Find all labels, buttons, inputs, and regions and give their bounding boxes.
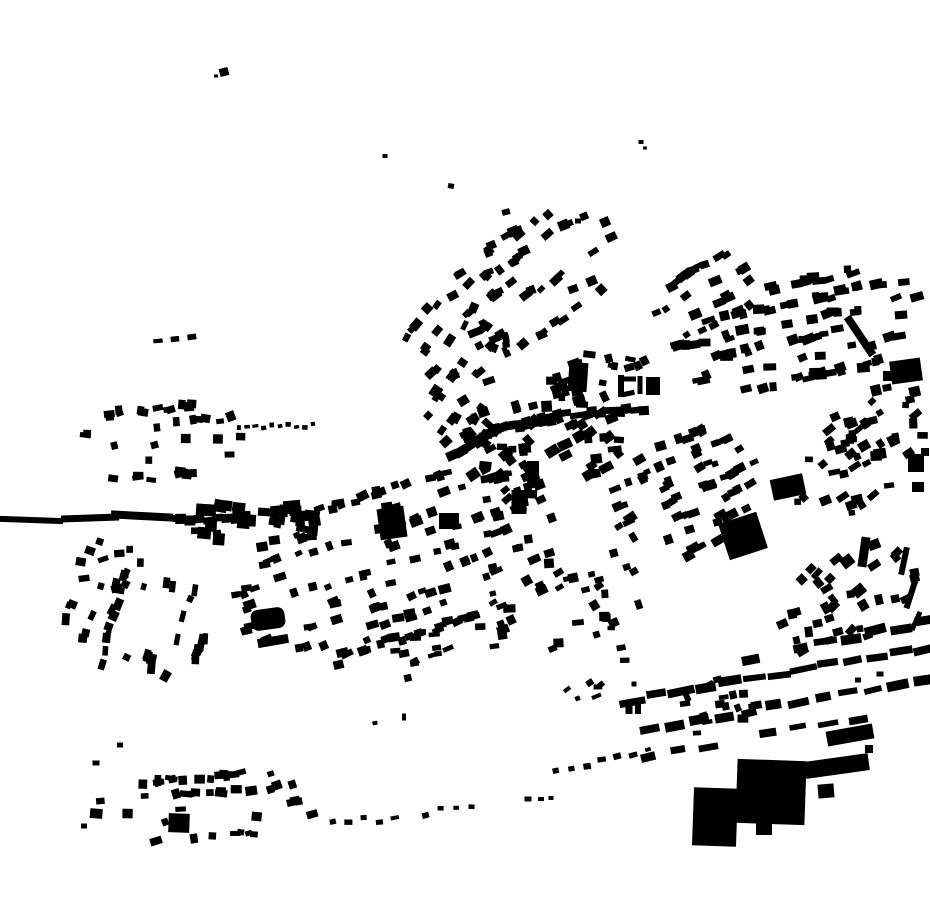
building-footprint — [850, 308, 861, 316]
building-footprint — [663, 534, 674, 546]
building-footprint — [848, 460, 862, 472]
building-footprint — [572, 619, 584, 626]
building-footprint — [440, 469, 452, 477]
building-footprint — [239, 511, 251, 523]
building-footprint — [638, 376, 643, 394]
building-footprint — [817, 459, 828, 470]
building-footprint — [829, 553, 843, 566]
building-footprint — [505, 276, 518, 288]
building-footprint — [588, 571, 596, 578]
building-footprint — [225, 410, 237, 422]
building-footprint — [385, 579, 396, 587]
building-footprint — [829, 411, 841, 422]
building-footprint — [482, 496, 491, 504]
building-footprint — [884, 482, 895, 489]
building-footprint — [231, 785, 242, 793]
building-footprint — [439, 435, 453, 449]
building-footprint — [213, 530, 222, 540]
building-footprint — [857, 439, 871, 453]
figure-ground-map — [0, 0, 930, 924]
building-footprint — [123, 571, 129, 578]
building-footprint — [806, 314, 818, 325]
building-footprint — [812, 292, 820, 298]
building-footprint — [190, 833, 199, 844]
building-footprint — [421, 302, 434, 315]
building-footprint — [792, 636, 800, 645]
building-footprint — [717, 674, 742, 687]
building-footprint — [714, 711, 734, 723]
building-footprint — [287, 779, 297, 789]
building-footprint — [867, 559, 881, 572]
building-footprint — [846, 590, 855, 599]
building-footprint — [735, 324, 750, 336]
building-footprint — [874, 594, 884, 606]
building-footprint — [426, 506, 438, 518]
building-footprint — [622, 390, 635, 397]
building-footprint — [591, 692, 602, 699]
building-footprint — [898, 278, 910, 286]
building-footprint — [588, 599, 600, 612]
building-footprint — [150, 441, 159, 450]
building-footprint — [390, 648, 400, 654]
building-footprint — [153, 338, 163, 343]
building-footprint — [632, 682, 637, 687]
building-footprint — [626, 700, 633, 714]
building-footprint — [639, 140, 644, 144]
building-footprint — [81, 628, 90, 638]
building-footprint — [306, 809, 319, 819]
building-footprint — [594, 684, 603, 689]
building-footprint — [527, 553, 541, 565]
building-footprint — [433, 548, 441, 555]
building-footprint — [794, 499, 801, 505]
building-footprint — [599, 216, 611, 228]
building-footprint — [302, 425, 308, 430]
building-footprint — [423, 410, 433, 420]
building-footprint — [832, 627, 844, 637]
building-footprint — [688, 307, 703, 320]
building-footprint — [805, 457, 813, 463]
building-footprint — [482, 376, 496, 386]
building-footprint — [822, 423, 836, 437]
building-footprint — [800, 275, 812, 284]
building-footprint — [325, 541, 334, 551]
building-footprint — [168, 813, 190, 833]
building-footprint — [432, 300, 442, 310]
building-footprint — [122, 653, 131, 662]
building-footprint — [599, 390, 610, 403]
building-footprint — [583, 763, 591, 770]
building-footprint — [848, 715, 868, 726]
building-footprint — [308, 582, 318, 592]
building-footprint — [715, 700, 726, 709]
building-footprint — [421, 812, 429, 819]
building-footprint — [196, 503, 217, 516]
building-footprint — [581, 467, 598, 482]
building-footprint — [552, 767, 559, 774]
building-footprint — [812, 619, 823, 629]
building-footprint — [695, 681, 717, 694]
building-footprint — [643, 147, 647, 150]
building-footprint — [908, 454, 924, 472]
building-footprint — [483, 530, 492, 538]
building-footprint — [851, 282, 860, 292]
building-footprint — [376, 819, 384, 825]
building-footprint — [818, 719, 839, 728]
building-footprint — [462, 558, 470, 565]
building-footprint — [360, 815, 366, 820]
building-footprint — [767, 671, 791, 680]
building-footprint — [875, 408, 884, 417]
building-footprint — [864, 623, 887, 638]
building-footprint — [434, 650, 442, 656]
building-footprint — [175, 806, 186, 812]
building-footprint — [422, 606, 432, 615]
building-footprint — [742, 365, 755, 375]
building-footprint — [219, 67, 230, 77]
building-footprint — [719, 694, 729, 700]
building-footprint — [583, 350, 596, 358]
building-footprint — [159, 669, 172, 683]
building-footprint — [740, 343, 750, 354]
building-footprint — [179, 610, 187, 622]
building-footprint — [251, 812, 262, 822]
building-footprint — [581, 586, 590, 594]
building-footprint — [568, 766, 575, 772]
building-footprint — [410, 633, 421, 641]
building-footprint — [153, 423, 160, 432]
building-footprint — [443, 560, 454, 572]
building-footprint — [541, 228, 555, 241]
building-footprint — [735, 759, 806, 825]
building-footprint — [543, 548, 555, 558]
building-footprint — [895, 310, 908, 319]
building-footprint — [424, 587, 437, 598]
building-footprint — [178, 775, 187, 785]
building-footprint — [173, 417, 180, 427]
building-footprint — [844, 315, 876, 358]
building-footprint — [883, 371, 893, 381]
building-footprint — [625, 356, 636, 363]
building-footprint — [126, 546, 133, 553]
building-footprint — [97, 555, 109, 563]
building-footprint — [632, 453, 646, 466]
building-footprint — [439, 513, 459, 529]
building-footprint — [651, 308, 661, 317]
building-footprint — [882, 331, 896, 343]
building-footprint — [457, 394, 471, 407]
building-footprint — [634, 599, 643, 610]
building-footprint — [465, 467, 481, 482]
building-footprint — [817, 783, 834, 798]
building-footprint — [400, 478, 412, 490]
building-footprint — [93, 761, 100, 766]
building-footprint — [802, 374, 815, 382]
building-footprint — [351, 498, 361, 506]
building-footprint — [171, 788, 181, 800]
building-footprint — [187, 333, 197, 340]
building-footprint — [544, 558, 554, 568]
building-footprint — [741, 707, 757, 718]
building-footprint — [742, 274, 754, 286]
building-footprint — [524, 534, 533, 544]
building-footprint — [913, 642, 930, 656]
building-footprint — [431, 324, 443, 337]
building-footprint — [474, 341, 484, 351]
building-footprint — [257, 634, 289, 648]
building-footprint — [889, 357, 923, 384]
building-footprint — [216, 418, 224, 424]
building-footprint — [512, 544, 522, 553]
building-footprint — [921, 448, 929, 456]
building-footprint — [457, 357, 468, 368]
building-footprint — [836, 491, 850, 503]
building-footprint — [95, 537, 104, 546]
building-footprint — [890, 293, 902, 303]
building-footprint — [87, 610, 96, 621]
building-footprint — [866, 653, 888, 663]
building-footprint — [692, 787, 738, 847]
building-footprint — [475, 623, 486, 630]
building-footprint — [734, 444, 744, 454]
building-footprint — [719, 310, 731, 321]
building-footprint — [823, 275, 835, 284]
building-footprint — [741, 504, 752, 514]
building-footprint — [608, 484, 621, 494]
building-footprint — [757, 382, 770, 394]
building-footprint — [443, 333, 456, 347]
building-footprint — [285, 422, 290, 427]
building-footprint — [797, 353, 808, 363]
building-footprint — [867, 397, 876, 406]
building-footprint — [108, 474, 119, 482]
building-footprint — [161, 818, 169, 827]
building-footprint — [187, 469, 197, 477]
building-footprint — [867, 489, 880, 501]
building-footprint — [904, 579, 919, 609]
building-footprint — [795, 573, 807, 585]
building-footprint — [592, 630, 600, 638]
building-footprint — [308, 547, 319, 557]
building-footprint — [769, 382, 777, 391]
building-footprint — [392, 613, 405, 623]
building-footprint — [187, 399, 197, 408]
building-footprint — [599, 379, 607, 386]
building-footprint — [191, 527, 204, 534]
building-footprint — [295, 797, 303, 805]
building-footprint — [482, 572, 491, 581]
building-footprint — [886, 678, 910, 692]
building-footprint — [824, 613, 835, 623]
building-footprint — [857, 537, 870, 568]
building-footprint — [585, 678, 594, 687]
building-footprint — [345, 576, 354, 584]
building-footprint — [294, 425, 300, 429]
building-footprint — [599, 612, 609, 622]
building-footprint — [497, 631, 508, 640]
building-footprint — [618, 375, 624, 397]
building-footprint — [503, 604, 516, 613]
building-footprint — [804, 626, 813, 637]
building-footprint — [815, 352, 826, 360]
building-footprint — [479, 461, 492, 470]
building-footprint — [438, 583, 452, 595]
building-footprint — [117, 743, 123, 748]
building-footprint — [97, 658, 106, 670]
building-footprint — [826, 724, 875, 747]
building-footprint — [646, 688, 666, 699]
building-footprint — [267, 770, 275, 777]
building-footprint — [114, 549, 125, 557]
building-footprint — [256, 541, 269, 552]
building-footprint — [512, 490, 527, 514]
building-footprint — [294, 550, 302, 558]
building-footprint — [527, 461, 539, 487]
building-footprint — [595, 283, 608, 296]
building-footprint — [791, 373, 802, 381]
building-footprint — [546, 512, 557, 523]
building-footprint — [601, 430, 616, 445]
building-footprint — [341, 539, 352, 546]
building-footprint — [568, 362, 589, 392]
building-footprint — [424, 525, 436, 536]
building-footprint — [567, 572, 579, 583]
building-footprint — [741, 654, 760, 666]
building-footprint — [839, 553, 856, 569]
building-footprint — [61, 513, 119, 522]
building-footprint — [653, 460, 665, 472]
building-footprint — [804, 753, 870, 779]
building-footprint — [873, 451, 881, 459]
building-footprint — [645, 747, 652, 752]
building-footprint — [815, 691, 831, 702]
building-footprint — [882, 383, 892, 391]
building-footprint — [149, 836, 163, 847]
building-footprint — [470, 553, 479, 563]
building-footprint — [840, 633, 862, 646]
building-footprint — [138, 779, 147, 789]
building-footprint — [488, 563, 498, 574]
building-footprint — [734, 703, 742, 712]
building-footprint — [300, 534, 308, 542]
building-footprint — [607, 626, 615, 630]
building-footprint — [574, 695, 580, 701]
building-footprint — [191, 584, 198, 596]
building-footprint — [441, 616, 453, 625]
building-footprint — [789, 722, 806, 730]
building-footprint — [890, 623, 913, 635]
building-footprint — [460, 320, 469, 331]
building-footprint — [451, 542, 460, 550]
building-footprint — [236, 433, 245, 441]
building-footprint — [909, 418, 917, 429]
building-footprint — [819, 494, 833, 506]
building-footprint — [830, 324, 844, 333]
building-footprint — [333, 659, 345, 670]
building-footprint — [611, 501, 624, 513]
building-footprint — [102, 633, 111, 644]
building-footprint — [277, 424, 282, 429]
building-footprint — [828, 468, 841, 476]
building-footprint — [258, 507, 271, 516]
building-footprint — [402, 332, 411, 342]
building-footprint — [110, 441, 118, 450]
building-footprint — [329, 818, 336, 825]
building-footprint — [232, 502, 246, 512]
building-footprint — [508, 446, 516, 453]
building-footprint — [318, 640, 329, 651]
building-footprint — [448, 183, 455, 189]
building-footprint — [174, 633, 181, 645]
building-footprint — [681, 340, 690, 350]
building-footprint — [219, 770, 228, 779]
building-footprint — [78, 575, 90, 583]
building-footprint — [409, 554, 421, 563]
building-footprint — [541, 400, 552, 412]
building-footprint — [776, 618, 789, 630]
building-footprint — [624, 377, 636, 382]
building-footprint — [909, 291, 924, 303]
building-footprint — [520, 574, 533, 587]
building-footprint — [376, 506, 407, 540]
building-footprint — [516, 337, 530, 350]
building-footprint — [862, 360, 872, 368]
building-footprint — [575, 219, 581, 224]
building-footprint — [140, 583, 147, 591]
building-footprint — [670, 745, 686, 754]
building-footprint — [765, 699, 782, 711]
building-footprint — [635, 700, 641, 714]
building-footprint — [843, 655, 863, 666]
building-footprint — [84, 545, 96, 556]
building-footprint — [437, 425, 447, 436]
building-footprint — [494, 264, 505, 276]
building-footprint — [593, 581, 604, 591]
building-footprint — [231, 591, 241, 599]
building-footprint — [869, 278, 884, 290]
building-footprint — [344, 819, 352, 824]
building-footprint — [754, 340, 765, 352]
building-footprint — [438, 806, 444, 811]
building-footprint — [620, 657, 630, 663]
building-footprint — [403, 674, 412, 683]
building-footprint — [383, 154, 388, 158]
building-footprint — [605, 231, 618, 243]
building-footprint — [175, 514, 186, 524]
building-footprint — [537, 285, 546, 294]
building-footprint — [194, 775, 205, 784]
building-footprint — [453, 806, 459, 810]
building-footprint — [268, 535, 280, 545]
building-footprint — [824, 573, 836, 585]
building-footprint — [489, 590, 496, 597]
building-footprint — [839, 469, 849, 478]
building-footprint — [877, 672, 884, 677]
building-footprint — [402, 714, 406, 721]
building-footprint — [665, 456, 676, 466]
building-footprint — [162, 577, 170, 589]
building-footprint — [468, 804, 474, 809]
building-footprint — [639, 723, 660, 734]
building-footprint — [406, 591, 417, 602]
building-footprint — [206, 789, 214, 796]
building-footprint — [781, 319, 793, 329]
building-footprint — [202, 633, 208, 644]
building-footprint — [890, 594, 900, 603]
building-footprint — [307, 622, 318, 631]
building-footprint — [789, 663, 817, 675]
building-footprint — [855, 678, 861, 683]
